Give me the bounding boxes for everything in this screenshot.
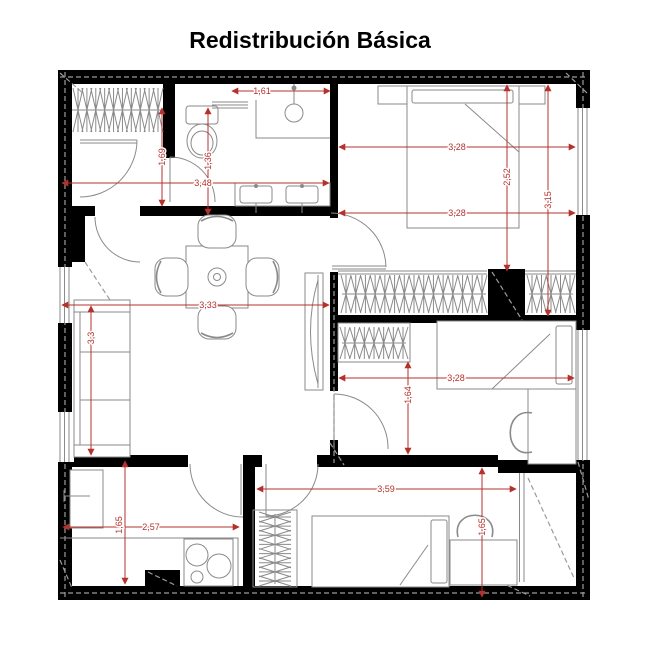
- dim-label: 1,69: [157, 148, 167, 166]
- window-gallery-partition: [520, 473, 525, 582]
- kitchen-door: [190, 464, 243, 517]
- folding-panel: [305, 273, 323, 390]
- master-bedroom-door: [331, 213, 386, 269]
- shower-head-icon: [285, 104, 303, 122]
- window-bedroom2-right: [574, 330, 592, 460]
- shower-mount: [292, 86, 297, 91]
- desk: [450, 540, 517, 585]
- desk-chair: [457, 515, 492, 537]
- dim-label: 3,59: [377, 484, 395, 494]
- dim-label: 3,28: [448, 208, 466, 218]
- sofa: [74, 300, 130, 457]
- dim-label: 2,57: [142, 522, 160, 532]
- wall-hall-right: [140, 206, 338, 216]
- wall-bath-east: [330, 70, 338, 218]
- shower-glass: [256, 100, 330, 138]
- chair-south: [198, 306, 236, 339]
- nightstand-right: [519, 86, 545, 104]
- dim-label: 3,33: [199, 300, 217, 310]
- toilet-tank: [186, 106, 218, 124]
- faucet-left-icon: [254, 184, 258, 188]
- single-bed: [312, 516, 449, 587]
- dim-label: 1,65: [114, 516, 124, 534]
- dim-label: 1,36: [203, 152, 213, 170]
- furniture: [60, 84, 576, 587]
- canvas: Redistribución Básica: [0, 0, 654, 656]
- window-kitchen-left: [56, 412, 74, 462]
- bedroom2: [437, 321, 576, 464]
- dim-label: 3,28: [447, 373, 465, 383]
- faucet-right-icon: [300, 184, 304, 188]
- chair-east: [246, 258, 279, 296]
- hall-living-door: [95, 217, 140, 262]
- wall-pillar: [58, 208, 85, 262]
- wall-closet-bath: [163, 70, 175, 158]
- window-living-left: [56, 267, 74, 323]
- shower: [212, 84, 330, 138]
- dim-label: 1,65: [477, 518, 487, 536]
- dining-set: [155, 215, 279, 339]
- wall-south-3: [317, 455, 498, 467]
- chair-west: [155, 258, 188, 296]
- dim-label: 3,3: [86, 332, 96, 345]
- dim-label: 1,64: [403, 386, 413, 404]
- wall-south-2: [243, 455, 262, 467]
- bedroom2-door: [334, 394, 388, 449]
- fridge: [70, 470, 103, 528]
- bedroom3-door: [266, 464, 318, 516]
- master-bedroom: [378, 86, 545, 228]
- double-bed: [407, 86, 519, 228]
- dim-label: 2,52: [502, 168, 512, 186]
- nightstand-left: [378, 86, 407, 104]
- dim-label: 3,28: [448, 142, 466, 152]
- wall-kitchen-step: [145, 570, 180, 586]
- dim-label: 3,48: [194, 178, 212, 188]
- dining-table: [186, 246, 248, 308]
- dim-label: 3,15: [543, 191, 553, 209]
- desk: [528, 389, 576, 464]
- chair-north: [198, 215, 236, 248]
- dim-label: 1,61: [253, 86, 271, 96]
- closet-door: [80, 140, 137, 197]
- window-master-right: [574, 108, 592, 215]
- page-title: Redistribución Básica: [189, 27, 431, 53]
